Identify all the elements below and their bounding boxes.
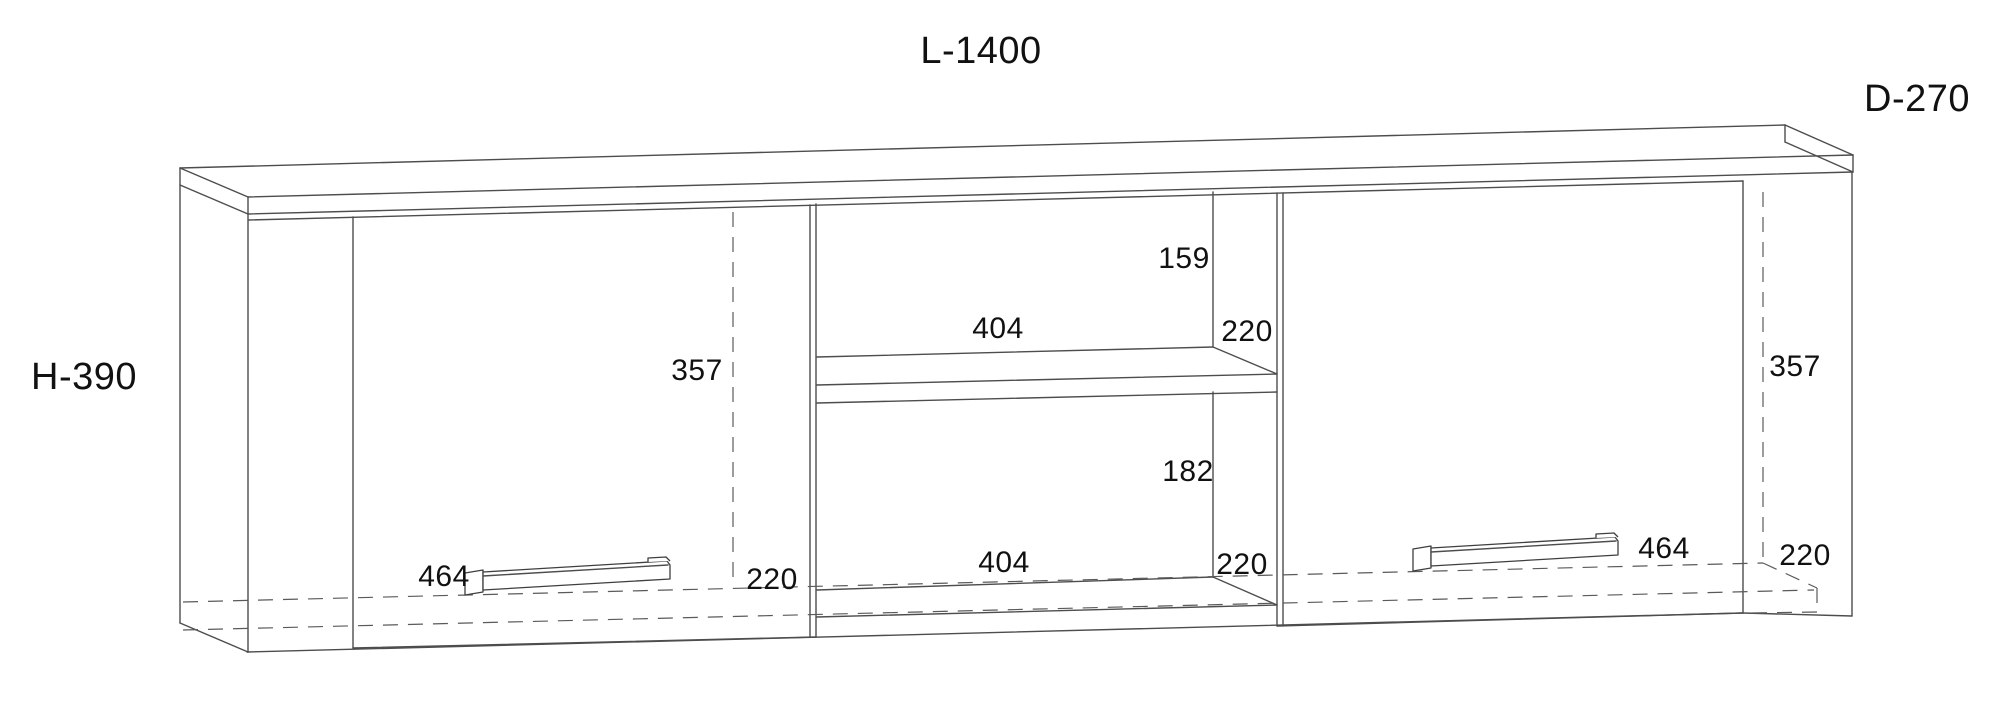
dim-bottom-opening-width: 404 [978, 548, 1030, 578]
dim-left-door-height: 357 [671, 356, 723, 386]
dim-lower-clearance: 182 [1162, 457, 1214, 487]
dim-shelf-width: 404 [972, 314, 1024, 344]
dim-overall-height: H-390 [31, 358, 137, 396]
dim-bottom-opening-depth: 220 [1216, 550, 1268, 580]
left-door-handle [465, 557, 670, 595]
dim-left-handle-width: 464 [418, 562, 470, 592]
dim-shelf-depth: 220 [1221, 317, 1273, 347]
dim-left-door-bottom-depth: 220 [746, 565, 798, 595]
dim-right-handle-width: 464 [1638, 534, 1690, 564]
dim-right-door-height: 357 [1769, 352, 1821, 382]
right-door-handle [1413, 533, 1618, 571]
cabinet-line-drawing [0, 0, 2004, 707]
middle-shelf [817, 347, 1277, 403]
middle-bottom [817, 577, 1277, 617]
dim-right-door-bottom-depth: 220 [1779, 541, 1831, 571]
dim-overall-depth: D-270 [1864, 80, 1970, 118]
dim-overall-length: L-1400 [920, 32, 1041, 70]
dim-upper-clearance: 159 [1158, 244, 1210, 274]
cabinet-technical-drawing: L-1400 D-270 H-390 159 404 220 357 357 1… [0, 0, 2004, 707]
